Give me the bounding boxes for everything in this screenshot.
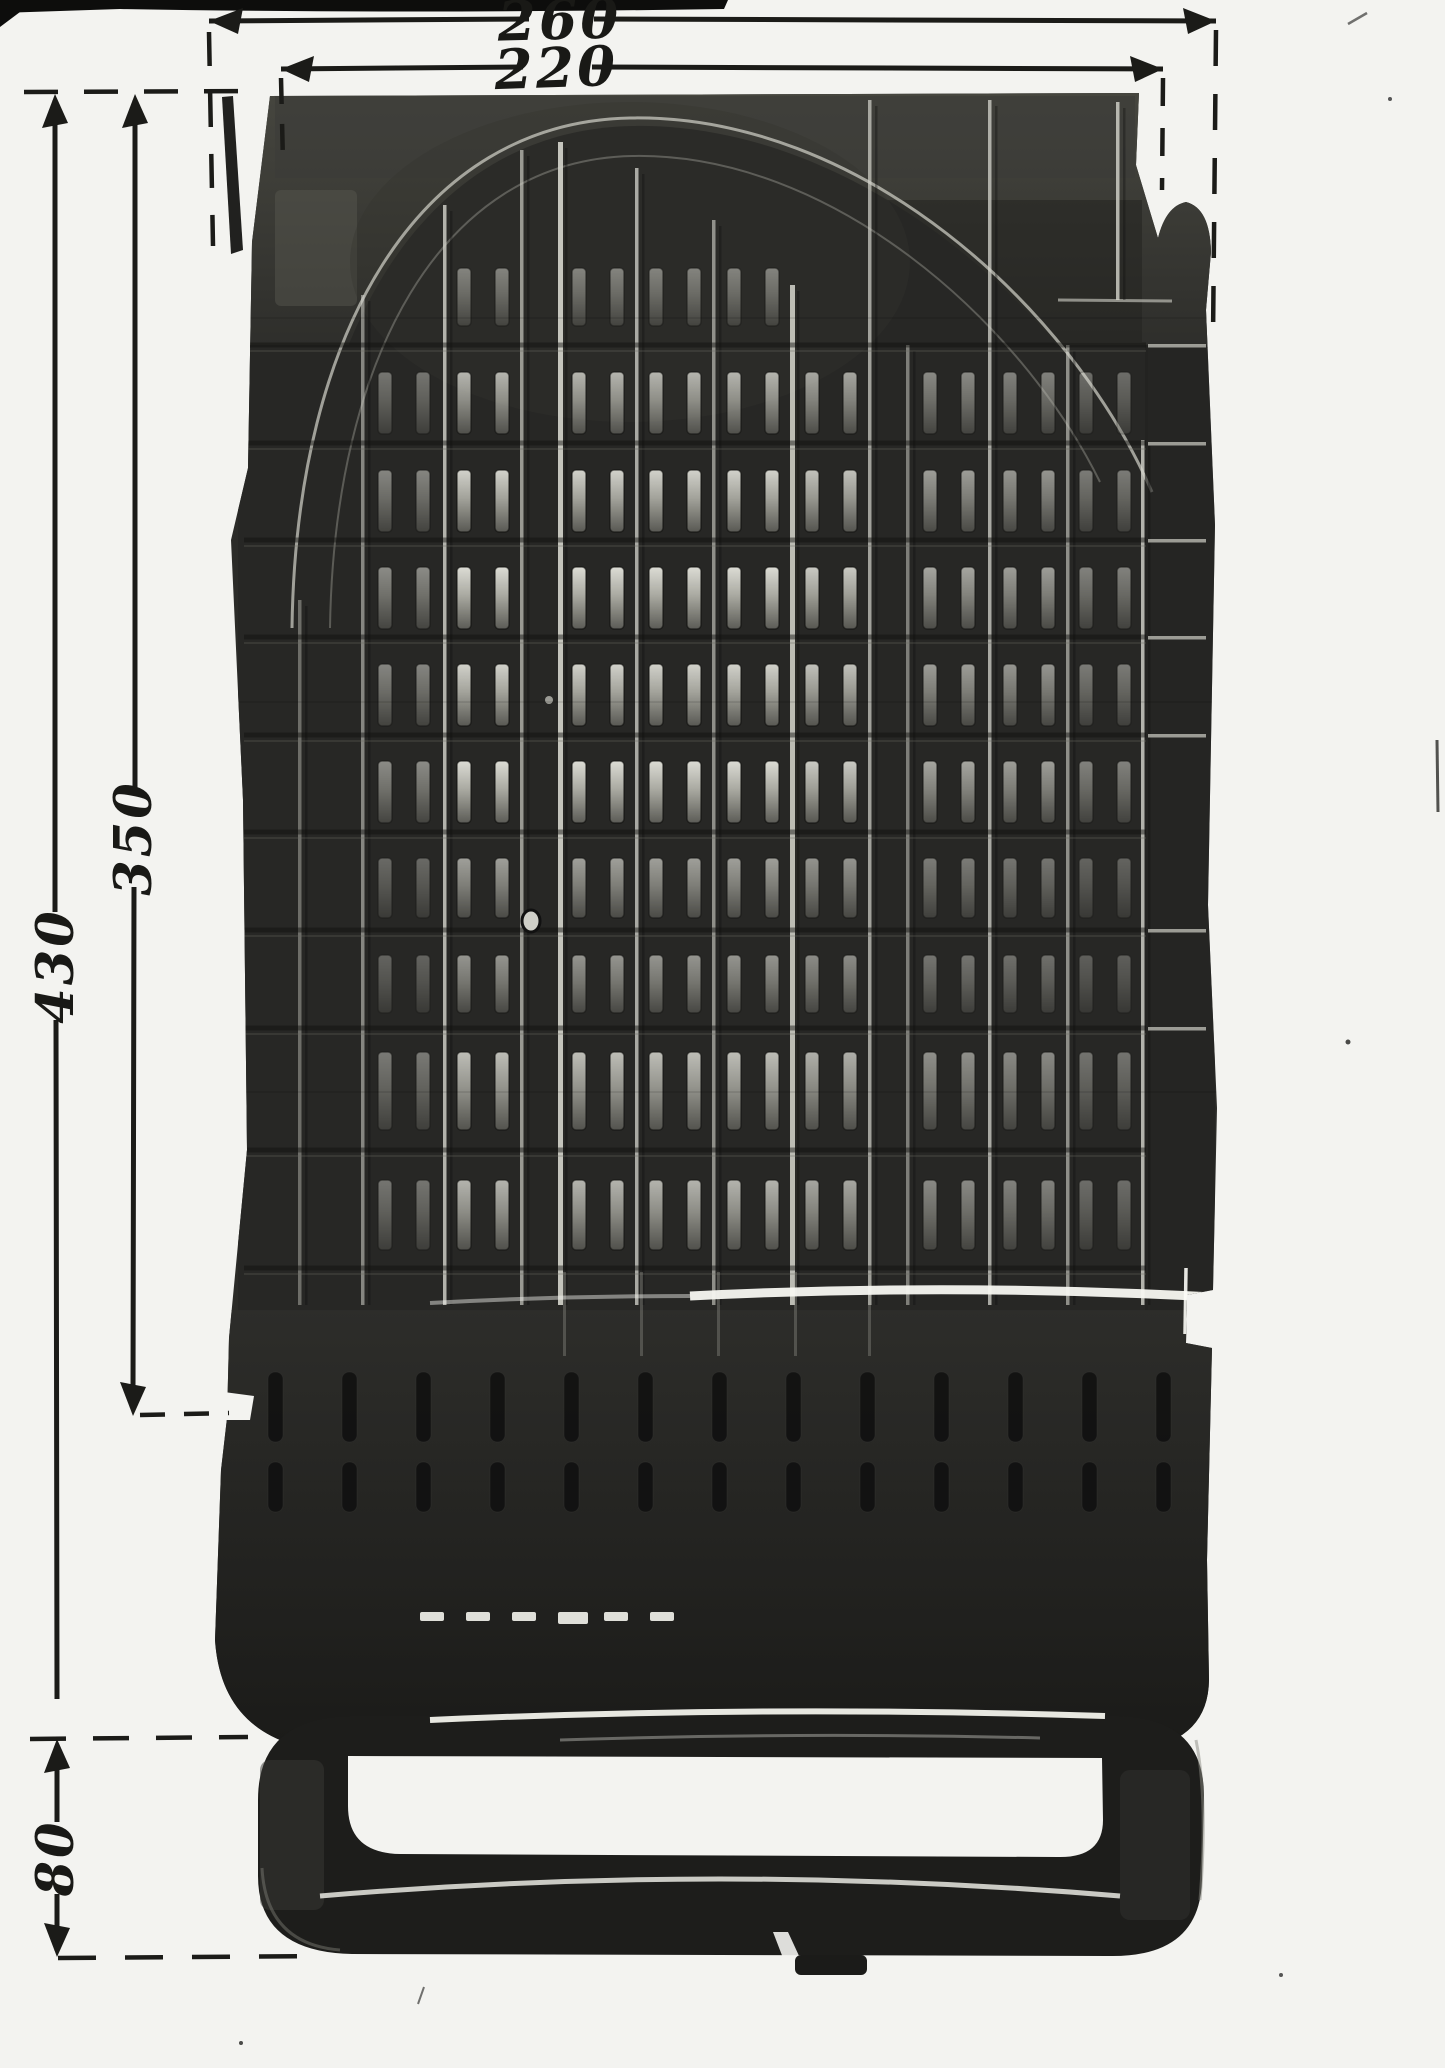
faint-streak bbox=[868, 1272, 871, 1356]
rib-highlight bbox=[361, 295, 365, 1305]
bright-dash bbox=[512, 1612, 536, 1621]
slat-slot bbox=[1003, 761, 1017, 823]
slat-slot bbox=[687, 761, 701, 823]
rib-shadow bbox=[1123, 108, 1126, 300]
skirt-slot bbox=[1008, 1462, 1023, 1512]
slat-slot bbox=[378, 858, 392, 918]
slat-slot bbox=[687, 955, 701, 1013]
faint-streak bbox=[794, 1272, 797, 1356]
margin-tick bbox=[1148, 344, 1206, 348]
dim-label-foot-height: 80 bbox=[26, 1820, 86, 1898]
slat-slot bbox=[1079, 1052, 1093, 1130]
slat-slot bbox=[378, 761, 392, 823]
slat-slot bbox=[805, 1052, 819, 1130]
dimension-line-430 bbox=[55, 100, 57, 1699]
slat-slot bbox=[727, 1180, 741, 1250]
slat-slot bbox=[1117, 1180, 1131, 1250]
slat-slot bbox=[843, 955, 857, 1013]
slat-slot bbox=[961, 567, 975, 629]
top-left-patch bbox=[275, 190, 357, 306]
slat-slot bbox=[805, 858, 819, 918]
slat-slot bbox=[923, 372, 937, 434]
slat-slot bbox=[805, 470, 819, 532]
slat-slot bbox=[610, 470, 624, 532]
slat-slot bbox=[1003, 664, 1017, 726]
slat-slot bbox=[961, 1052, 975, 1130]
slat-slot bbox=[765, 858, 779, 918]
slat-slot bbox=[416, 470, 430, 532]
loop-foot-tab bbox=[795, 1955, 867, 1975]
slat-slot bbox=[1117, 858, 1131, 918]
rib-highlight bbox=[712, 220, 716, 1305]
skirt-slot bbox=[1156, 1462, 1171, 1512]
slat-slot bbox=[378, 664, 392, 726]
slat-slot bbox=[765, 372, 779, 434]
skirt-slot bbox=[564, 1372, 579, 1442]
slat-slot bbox=[572, 761, 586, 823]
margin-tick bbox=[1148, 442, 1206, 446]
slat-slot bbox=[495, 567, 509, 629]
slat-slot bbox=[961, 664, 975, 726]
slat-slot bbox=[843, 858, 857, 918]
loop-left-bar-sheen bbox=[260, 1760, 324, 1910]
slat-slot bbox=[687, 664, 701, 726]
center-hole bbox=[522, 910, 540, 932]
speck bbox=[239, 2041, 243, 2045]
slat-slot bbox=[923, 470, 937, 532]
dim-label-overall-height: 430 bbox=[26, 908, 86, 1023]
slat-slot bbox=[1117, 761, 1131, 823]
slat-slot bbox=[572, 1052, 586, 1130]
slat-slot bbox=[727, 470, 741, 532]
slat-slot bbox=[765, 567, 779, 629]
slat-slot bbox=[378, 1052, 392, 1130]
slat-slot bbox=[1003, 372, 1017, 434]
slat-slot bbox=[805, 372, 819, 434]
slat-slot bbox=[727, 664, 741, 726]
faint-streak bbox=[717, 1272, 720, 1356]
slat-slot bbox=[961, 761, 975, 823]
slat-slot bbox=[843, 1180, 857, 1250]
slat-slot bbox=[805, 664, 819, 726]
slat-slot bbox=[416, 955, 430, 1013]
slat-slot bbox=[961, 1180, 975, 1250]
slat-slot bbox=[843, 372, 857, 434]
slat-slot bbox=[687, 567, 701, 629]
slat-slot bbox=[495, 1052, 509, 1130]
slat-slot bbox=[687, 1052, 701, 1130]
dimension-line-260 bbox=[209, 19, 1216, 21]
skirt-slot bbox=[490, 1462, 505, 1512]
bright-dash bbox=[558, 1612, 588, 1624]
skirt-slot bbox=[1008, 1372, 1023, 1442]
slat-slot bbox=[843, 761, 857, 823]
slat-slot bbox=[457, 858, 471, 918]
corner-shelf-line bbox=[1058, 300, 1172, 301]
slat-slot bbox=[572, 470, 586, 532]
slat-slot bbox=[1003, 955, 1017, 1013]
slat-slot bbox=[1079, 858, 1093, 918]
rib-highlight bbox=[1116, 102, 1120, 300]
rib-shadow bbox=[1148, 446, 1151, 1305]
rib-shadow bbox=[450, 211, 453, 1305]
speck bbox=[1388, 97, 1392, 101]
rib-shadow bbox=[1073, 351, 1076, 1305]
slat-slot bbox=[416, 761, 430, 823]
slat-slot bbox=[1041, 858, 1055, 918]
slat-slot bbox=[572, 664, 586, 726]
slat-slot bbox=[610, 955, 624, 1013]
slat-slot bbox=[649, 858, 663, 918]
slat-slot bbox=[457, 1180, 471, 1250]
slat-slot bbox=[416, 858, 430, 918]
slat-slot bbox=[649, 1180, 663, 1250]
slat-slot bbox=[1079, 761, 1093, 823]
margin-tick bbox=[1148, 636, 1206, 640]
slat-slot bbox=[495, 761, 509, 823]
slat-slot bbox=[923, 1052, 937, 1130]
slat-slot bbox=[1003, 1052, 1017, 1130]
slat-slot bbox=[805, 955, 819, 1013]
rib-highlight bbox=[520, 150, 524, 1305]
slat-slot bbox=[843, 470, 857, 532]
slat-slot bbox=[961, 858, 975, 918]
bright-dash bbox=[420, 1612, 444, 1621]
slat-slot bbox=[1041, 1052, 1055, 1130]
slat-slot bbox=[923, 664, 937, 726]
arch-sheen bbox=[350, 102, 910, 422]
slat-slot bbox=[572, 567, 586, 629]
slat-slot bbox=[687, 1180, 701, 1250]
foot-loop bbox=[258, 1716, 1204, 1975]
skirt-slot bbox=[712, 1372, 727, 1442]
skirt-slot bbox=[1082, 1462, 1097, 1512]
slat-slot bbox=[765, 470, 779, 532]
rib-highlight bbox=[298, 600, 302, 1305]
slat-slot bbox=[416, 1180, 430, 1250]
right-margin-band bbox=[1145, 345, 1215, 1311]
skirt-slot bbox=[416, 1462, 431, 1512]
slat-slot bbox=[727, 761, 741, 823]
slat-slot bbox=[765, 955, 779, 1013]
slat-slot bbox=[495, 858, 509, 918]
slat-slot bbox=[610, 567, 624, 629]
slat-slot bbox=[1079, 955, 1093, 1013]
faint-streak bbox=[563, 1272, 566, 1356]
faint-streak bbox=[640, 1272, 643, 1356]
slat-slot bbox=[378, 372, 392, 434]
slat-slot bbox=[1003, 858, 1017, 918]
slat-slot bbox=[923, 1180, 937, 1250]
slat-slot bbox=[1079, 664, 1093, 726]
skirt-slot bbox=[490, 1372, 505, 1442]
skirt-slot bbox=[860, 1372, 875, 1442]
rib-shadow bbox=[305, 606, 308, 1305]
skirt-slot bbox=[268, 1462, 283, 1512]
rib-highlight bbox=[1141, 440, 1145, 1305]
slat-slot bbox=[843, 664, 857, 726]
slat-slot bbox=[1041, 664, 1055, 726]
slat-slot bbox=[610, 858, 624, 918]
shell-interior bbox=[180, 90, 1225, 1758]
skirt-slot bbox=[638, 1462, 653, 1512]
slat-slot bbox=[923, 761, 937, 823]
slat-slot bbox=[610, 1052, 624, 1130]
dimension-line-220 bbox=[281, 67, 1163, 69]
rib-shadow bbox=[913, 351, 916, 1305]
loop-right-bar-sheen bbox=[1120, 1770, 1190, 1920]
slat-slot bbox=[843, 567, 857, 629]
skirt-slot bbox=[1156, 1372, 1171, 1442]
slat-slot bbox=[687, 372, 701, 434]
slat-slot bbox=[649, 470, 663, 532]
skirt-slot bbox=[638, 1372, 653, 1442]
slat-slot bbox=[649, 664, 663, 726]
slat-slot bbox=[378, 567, 392, 629]
skirt-slot bbox=[712, 1462, 727, 1512]
slat-slot bbox=[572, 1180, 586, 1250]
slat-slot bbox=[457, 664, 471, 726]
slat-slot bbox=[1003, 1180, 1017, 1250]
skirt-slot bbox=[934, 1462, 949, 1512]
slat-slot bbox=[1117, 664, 1131, 726]
slat-slot bbox=[1117, 372, 1131, 434]
slat-slot bbox=[1079, 372, 1093, 434]
slat-slot bbox=[1041, 470, 1055, 532]
annotated-photo-page: 260 220 430 350 80 bbox=[0, 0, 1445, 2068]
foot-loop-opening bbox=[348, 1756, 1103, 1857]
slat-slot bbox=[495, 664, 509, 726]
small-hole bbox=[545, 696, 553, 704]
left-edge-notch bbox=[221, 1392, 254, 1420]
slat-slot bbox=[765, 1052, 779, 1130]
slat-slot bbox=[457, 470, 471, 532]
rib-shadow bbox=[875, 106, 878, 1305]
slat-slot bbox=[649, 1052, 663, 1130]
slat-slot bbox=[843, 1052, 857, 1130]
slat-slot bbox=[457, 567, 471, 629]
edge-slit-highlight bbox=[1185, 1268, 1186, 1334]
slat-slot bbox=[416, 664, 430, 726]
skirt-slot bbox=[786, 1462, 801, 1512]
rib-highlight bbox=[906, 345, 910, 1305]
slat-slot bbox=[1079, 567, 1093, 629]
slat-slot bbox=[495, 1180, 509, 1250]
rib-highlight bbox=[558, 142, 563, 1305]
skirt-slot bbox=[342, 1462, 357, 1512]
slat-slot bbox=[610, 372, 624, 434]
slat-slot bbox=[649, 761, 663, 823]
bright-dash bbox=[650, 1612, 674, 1621]
rib-shadow bbox=[527, 156, 530, 1305]
skirt-slot bbox=[786, 1372, 801, 1442]
rib-highlight bbox=[443, 205, 447, 1305]
dimension-line-350 bbox=[133, 100, 135, 1392]
skirt-slot bbox=[1082, 1372, 1097, 1442]
slat-slot bbox=[457, 955, 471, 1013]
slat-slot bbox=[727, 858, 741, 918]
slat-slot bbox=[765, 664, 779, 726]
speck bbox=[1279, 1973, 1283, 1977]
slat-slot bbox=[610, 761, 624, 823]
slat-slot bbox=[1117, 470, 1131, 532]
slat-slot bbox=[1041, 955, 1055, 1013]
slat-slot bbox=[378, 1180, 392, 1250]
slat-slot bbox=[1003, 567, 1017, 629]
slat-slot bbox=[1041, 1180, 1055, 1250]
slat-slot bbox=[378, 470, 392, 532]
slat-slot bbox=[805, 1180, 819, 1250]
slat-slot bbox=[727, 567, 741, 629]
slat-slot bbox=[1041, 372, 1055, 434]
chair-shell-photo bbox=[180, 90, 1225, 1975]
slat-slot bbox=[416, 372, 430, 434]
slat-slot bbox=[649, 955, 663, 1013]
skirt-slot bbox=[416, 1372, 431, 1442]
slat-slot bbox=[1041, 567, 1055, 629]
slat-slot bbox=[495, 470, 509, 532]
rib-shadow bbox=[995, 106, 998, 1305]
slat-slot bbox=[727, 955, 741, 1013]
skirt-slot bbox=[934, 1372, 949, 1442]
rib-shadow bbox=[565, 148, 568, 1305]
slat-slot bbox=[495, 372, 509, 434]
slat-slot bbox=[727, 1052, 741, 1130]
slat-slot bbox=[457, 1052, 471, 1130]
margin-tick bbox=[1148, 929, 1206, 933]
dim-label-top-width: 220 bbox=[492, 33, 619, 102]
slat-slot bbox=[687, 470, 701, 532]
slat-slot bbox=[649, 567, 663, 629]
slat-slot bbox=[1117, 567, 1131, 629]
slat-slot bbox=[572, 858, 586, 918]
margin-tick bbox=[1148, 734, 1206, 738]
slat-slot bbox=[572, 955, 586, 1013]
rib-shadow bbox=[719, 226, 722, 1305]
slat-slot bbox=[457, 761, 471, 823]
slat-slot bbox=[727, 372, 741, 434]
slat-slot bbox=[1117, 955, 1131, 1013]
slat-slot bbox=[961, 955, 975, 1013]
slat-slot bbox=[416, 1052, 430, 1130]
slat-slot bbox=[765, 1180, 779, 1250]
slat-slot bbox=[416, 567, 430, 629]
slat-slot bbox=[572, 372, 586, 434]
slat-slot bbox=[805, 567, 819, 629]
bright-dash bbox=[604, 1612, 628, 1621]
slat-slot bbox=[610, 664, 624, 726]
slat-slot bbox=[610, 1180, 624, 1250]
dimensioned-photo-figure: 260 220 430 350 80 bbox=[0, 0, 1445, 2068]
slat-slot bbox=[961, 470, 975, 532]
speck bbox=[1346, 1040, 1351, 1045]
slat-slot bbox=[805, 761, 819, 823]
rib-shadow bbox=[368, 301, 371, 1305]
skirt-slot bbox=[268, 1372, 283, 1442]
slat-slot bbox=[923, 567, 937, 629]
slat-slot bbox=[765, 761, 779, 823]
slat-slot bbox=[649, 372, 663, 434]
slat-slot bbox=[457, 372, 471, 434]
slat-slot bbox=[378, 955, 392, 1013]
margin-tick bbox=[1148, 539, 1206, 543]
slat-slot bbox=[923, 858, 937, 918]
slat-slot bbox=[1079, 470, 1093, 532]
skirt-slot bbox=[342, 1372, 357, 1442]
right-edge-mark bbox=[1437, 740, 1438, 812]
slat-slot bbox=[495, 955, 509, 1013]
bright-dash bbox=[466, 1612, 490, 1621]
slat-slot bbox=[1003, 470, 1017, 532]
dim-label-body-height: 350 bbox=[104, 780, 164, 895]
skirt-slot bbox=[860, 1462, 875, 1512]
slat-slot bbox=[923, 955, 937, 1013]
skirt-slot bbox=[564, 1462, 579, 1512]
slat-slot bbox=[1079, 1180, 1093, 1250]
rib-highlight bbox=[1066, 345, 1070, 1305]
margin-tick bbox=[1148, 1027, 1206, 1031]
slat-slot bbox=[1117, 1052, 1131, 1130]
slat-slot bbox=[687, 858, 701, 918]
slat-slot bbox=[961, 372, 975, 434]
slat-slot bbox=[1041, 761, 1055, 823]
